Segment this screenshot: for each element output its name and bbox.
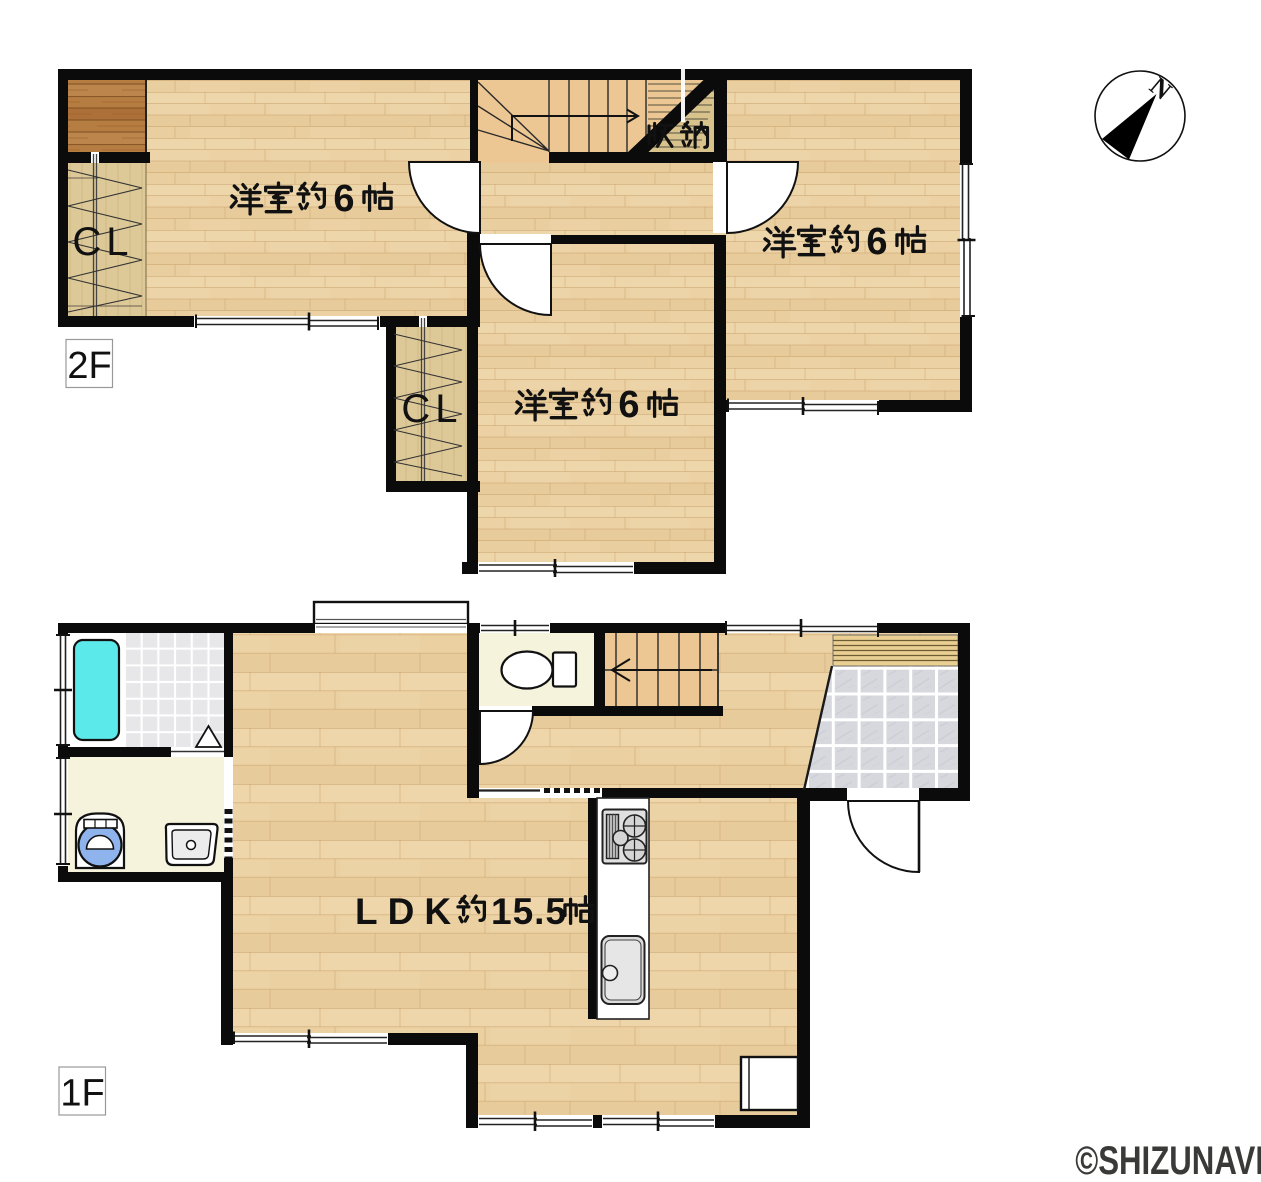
svg-text:LDK: LDK [355,891,461,932]
svg-text:6: 6 [333,178,354,220]
svg-text:6: 6 [618,384,639,426]
svg-text:2F: 2F [67,345,111,387]
svg-text:1F: 1F [60,1073,104,1115]
svg-text:©SHIZUNAVI: ©SHIZUNAVI [1075,1138,1261,1182]
svg-text:15.5: 15.5 [491,891,567,932]
svg-text:6: 6 [866,221,887,263]
svg-text:CL: CL [401,387,462,431]
svg-text:CL: CL [72,220,133,264]
